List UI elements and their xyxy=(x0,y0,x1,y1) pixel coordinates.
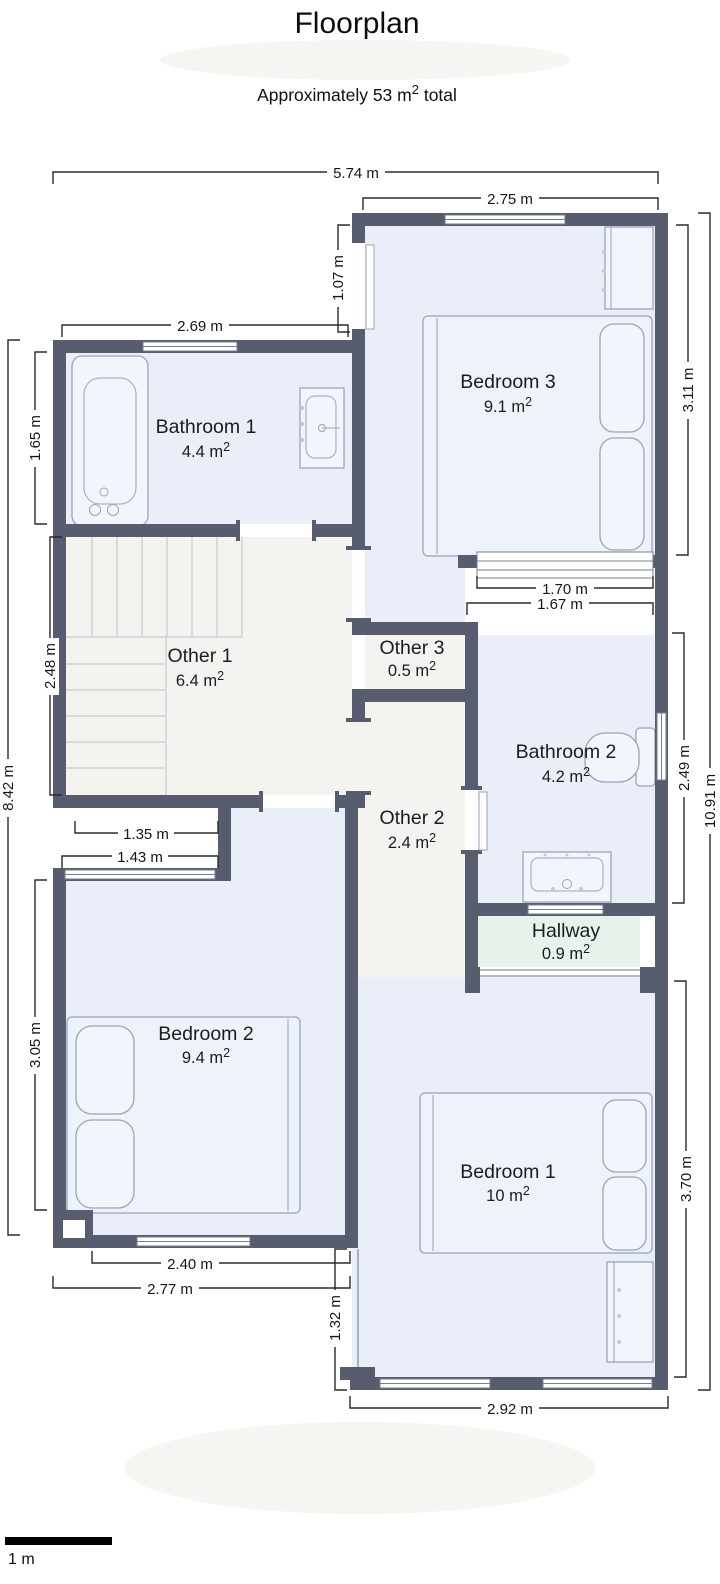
door-leaf-bathroom2 xyxy=(479,792,487,850)
svg-text:2.77 m: 2.77 m xyxy=(147,1281,193,1298)
dim-bathroom2-width: 1.67 m xyxy=(467,594,653,615)
door-opening-bedroom2 xyxy=(263,795,335,808)
dim-overall-width: 5.74 m xyxy=(53,163,658,184)
pillow xyxy=(600,438,644,550)
watermark-top xyxy=(160,40,570,80)
dim-bedroom1-height: 3.70 m xyxy=(674,981,695,1377)
svg-text:1.32 m: 1.32 m xyxy=(327,1295,344,1341)
dim-bedroom3-width: 2.75 m xyxy=(363,189,658,210)
dim-bathroom1-height: 1.65 m xyxy=(26,352,47,524)
svg-text:10.91 m: 10.91 m xyxy=(702,774,719,828)
svg-text:3.05 m: 3.05 m xyxy=(27,1022,44,1068)
other2-label: Other 2 xyxy=(379,807,444,829)
svg-text:5.74 m: 5.74 m xyxy=(333,165,379,182)
watermark-bottom xyxy=(125,1422,595,1514)
other3-area: 0.5 m2 xyxy=(388,659,436,680)
bedroom3-label: Bedroom 3 xyxy=(460,371,555,393)
other2-area: 2.4 m2 xyxy=(388,831,436,852)
bathroom1-area: 4.4 m2 xyxy=(182,440,230,461)
svg-text:8.42 m: 8.42 m xyxy=(0,765,17,811)
dim-bathroom1-width: 2.69 m xyxy=(62,316,348,337)
svg-text:3.11 m: 3.11 m xyxy=(680,368,697,413)
bathtub xyxy=(72,356,148,526)
scale-bar-line xyxy=(5,1537,112,1545)
svg-text:3.70 m: 3.70 m xyxy=(678,1156,695,1202)
svg-text:2.40 m: 2.40 m xyxy=(167,1256,213,1273)
door-opening-bedroom3 xyxy=(352,243,365,329)
dim-bedroom3-height: 3.11 m xyxy=(676,225,697,555)
svg-text:1.35 m: 1.35 m xyxy=(123,826,169,843)
dim-bedroom2-window-width: 2.40 m xyxy=(92,1251,350,1273)
dim-stairs-width: 1.35 m xyxy=(75,821,218,843)
page-title: Floorplan xyxy=(294,7,419,40)
svg-text:2.49 m: 2.49 m xyxy=(676,745,693,791)
dim-right-total-height: 10.91 m xyxy=(698,213,719,1390)
pillow xyxy=(603,1177,646,1250)
svg-text:2.48 m: 2.48 m xyxy=(42,643,59,689)
dim-left-total-height: 8.42 m xyxy=(0,340,20,1235)
other3-label: Other 3 xyxy=(379,637,444,659)
svg-text:2.75 m: 2.75 m xyxy=(487,191,533,208)
wardrobe-bedroom3 xyxy=(605,227,653,309)
floorplan-svg: Floorplan Approximately 53 m2 total xyxy=(0,0,720,1584)
dim-bedroom2-width: 2.77 m xyxy=(53,1276,350,1298)
vanity-bathroom2 xyxy=(523,852,611,902)
dim-bathroom2-height: 2.49 m xyxy=(672,633,693,903)
pillow xyxy=(600,324,644,432)
dim-bedroom1-width: 2.92 m xyxy=(350,1396,668,1418)
bedroom2-furniture xyxy=(67,1017,300,1213)
door-opening-bathroom1 xyxy=(240,524,312,537)
pillow xyxy=(76,1120,134,1208)
other1-area: 6.4 m2 xyxy=(176,669,224,690)
scale-bar-label: 1 m xyxy=(8,1551,35,1568)
svg-text:1.07 m: 1.07 m xyxy=(330,255,347,301)
bedroom2-label: Bedroom 2 xyxy=(158,1023,253,1045)
svg-text:1.65 m: 1.65 m xyxy=(27,415,44,461)
dim-bedroom2-height: 3.05 m xyxy=(26,880,47,1210)
hallway-area: 0.9 m2 xyxy=(542,942,590,963)
svg-text:2.92 m: 2.92 m xyxy=(487,1401,533,1418)
floorplan-page: Floorplan Approximately 53 m2 total xyxy=(0,0,720,1584)
pillow xyxy=(603,1100,646,1172)
door-opening-other3 xyxy=(352,635,365,689)
pillow xyxy=(76,1026,134,1114)
bedroom1-label: Bedroom 1 xyxy=(460,1161,555,1183)
bathroom2-label: Bathroom 2 xyxy=(516,741,617,763)
door-leaf-bedroom3 xyxy=(366,245,374,329)
dim-bedroom3-door-height: 1.07 m xyxy=(329,225,350,332)
svg-text:1.43 m: 1.43 m xyxy=(117,849,163,866)
total-area-subtitle: Approximately 53 m2 total xyxy=(257,82,457,105)
window-bedroom3-bottom xyxy=(477,552,653,578)
chimney-flue xyxy=(63,1220,85,1238)
svg-text:1.67 m: 1.67 m xyxy=(537,596,583,613)
svg-text:2.69 m: 2.69 m xyxy=(177,318,223,335)
scale-bar: 1 m xyxy=(5,1537,112,1568)
bathroom2-area: 4.2 m2 xyxy=(542,765,590,786)
bedroom3-area: 9.1 m2 xyxy=(484,395,532,416)
bathroom1-label: Bathroom 1 xyxy=(156,416,257,438)
dim-bedroom2-top-width: 1.43 m xyxy=(62,847,218,868)
hallway-label: Hallway xyxy=(532,920,601,942)
other1-label: Other 1 xyxy=(167,645,232,667)
bedroom2-area: 9.4 m2 xyxy=(182,1046,230,1067)
